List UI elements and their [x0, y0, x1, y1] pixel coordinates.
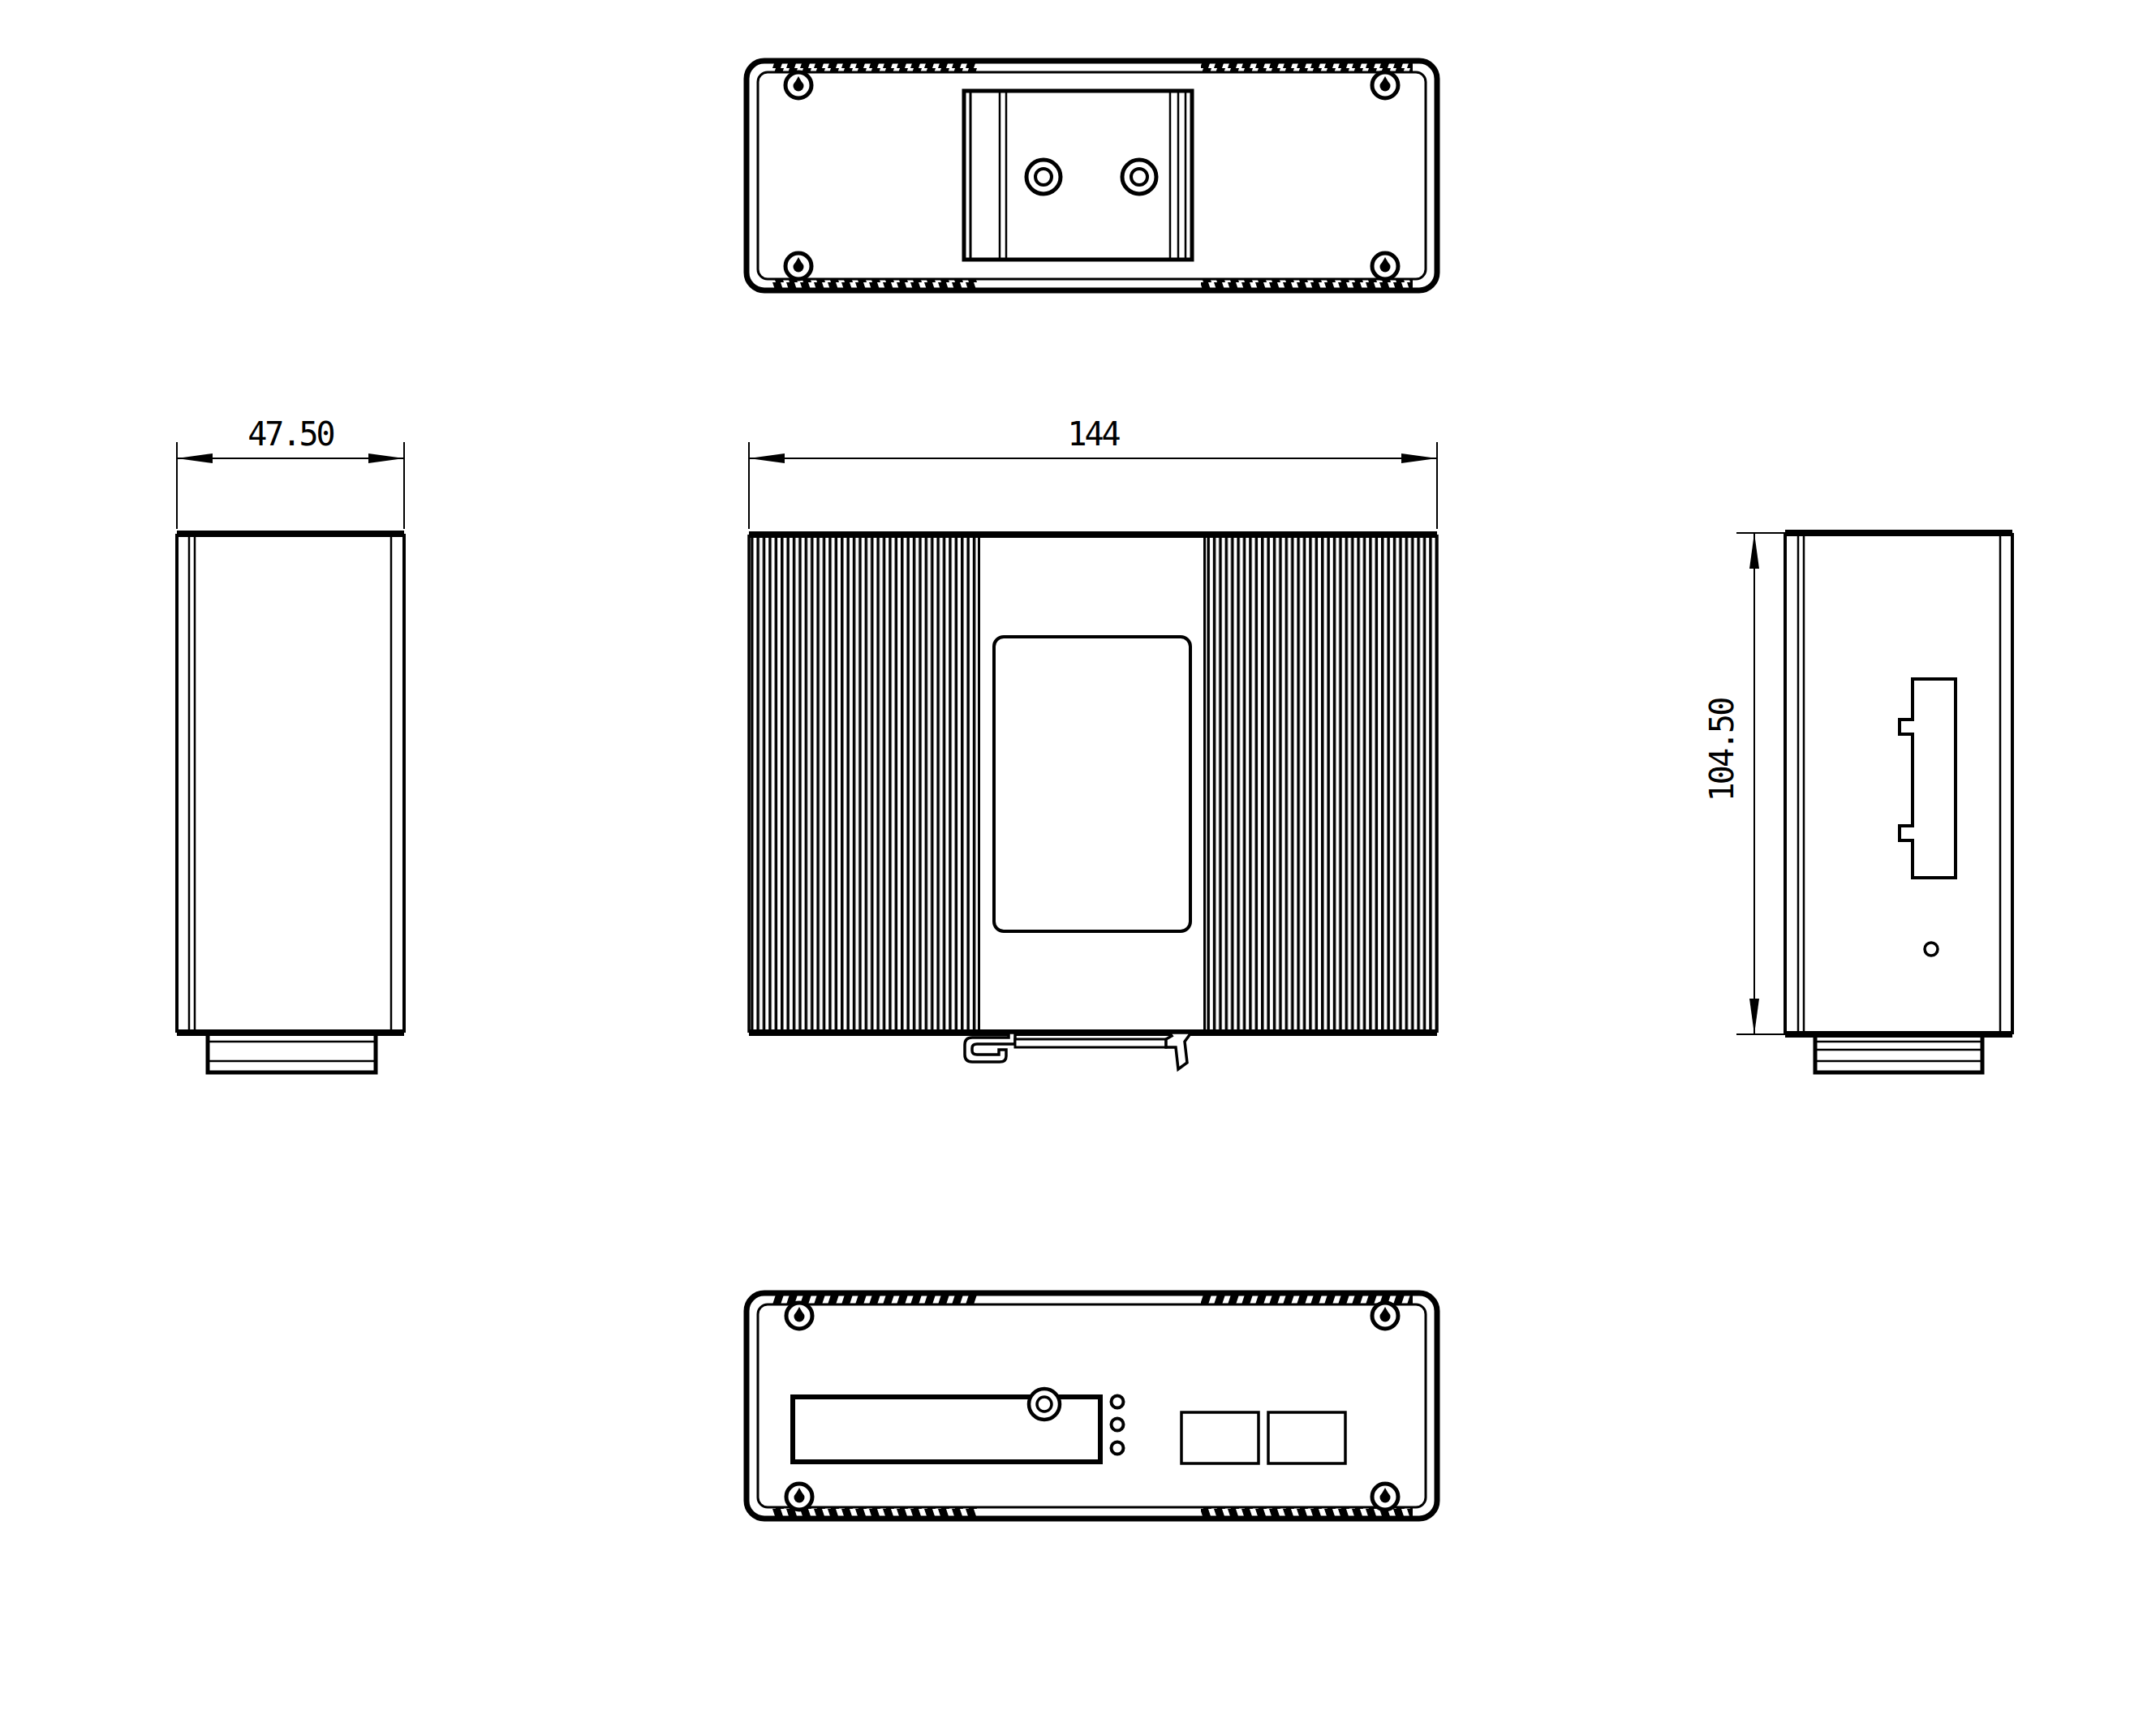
- arrowhead-top: [1749, 533, 1759, 569]
- heatsink-fins-right: [1203, 538, 1437, 1030]
- foot-outline: [1815, 1034, 1982, 1072]
- arrowhead-left: [177, 453, 213, 463]
- top-view: [747, 61, 1437, 290]
- led-hole: [1112, 1419, 1124, 1431]
- mounting-foot: [1815, 1034, 1982, 1072]
- drawing-canvas: 47.50 144: [0, 0, 2130, 1736]
- arrowhead-right: [368, 453, 404, 463]
- port-cutout: [1268, 1412, 1345, 1463]
- foot-outline: [208, 1033, 376, 1072]
- corner-screw: [786, 1303, 812, 1329]
- arrowhead-bottom: [1749, 999, 1759, 1034]
- clip-bar: [1015, 1039, 1166, 1047]
- terminal-screw: [1029, 1389, 1060, 1420]
- plate-screw: [1122, 160, 1156, 194]
- arrowhead-right: [1401, 453, 1437, 463]
- product-label-area: [994, 637, 1190, 931]
- corner-screw: [1372, 1484, 1398, 1510]
- corner-screw: [786, 1484, 812, 1510]
- dimension-depth: 47.50: [177, 415, 404, 529]
- pilot-hole: [1925, 943, 1938, 956]
- dimension-height-text: 104.50: [1703, 698, 1741, 801]
- clip-hook: [965, 1033, 1015, 1062]
- mounting-foot: [208, 1033, 376, 1072]
- corner-screw: [785, 253, 811, 279]
- dimension-depth-text: 47.50: [247, 415, 333, 453]
- corner-screw: [1372, 72, 1398, 98]
- din-plate-profile: [1900, 679, 1956, 878]
- led-hole: [1112, 1396, 1124, 1408]
- corner-screw: [785, 72, 811, 98]
- arrowhead-left: [749, 453, 785, 463]
- heatsink-fins-left: [749, 538, 980, 1030]
- bottom-view: [747, 1293, 1437, 1519]
- front-view: 144: [749, 415, 1437, 1069]
- dimension-width: 144: [749, 415, 1437, 529]
- corner-screw: [1372, 253, 1398, 279]
- clip-latch: [1166, 1033, 1191, 1069]
- multiview-technical-drawing: 47.50 144: [0, 0, 2130, 1736]
- corner-screw: [1372, 1303, 1398, 1329]
- dimension-width-text: 144: [1067, 415, 1120, 453]
- plate-screw: [1026, 160, 1061, 194]
- dimension-height: 104.50: [1703, 533, 1788, 1034]
- led-hole: [1112, 1442, 1124, 1455]
- port-cutout: [1181, 1412, 1259, 1463]
- left-side-view: 47.50: [177, 415, 404, 1072]
- din-rail-clip: [965, 1033, 1191, 1069]
- right-side-view: 104.50: [1703, 533, 2012, 1072]
- din-mount-plate-top: [964, 91, 1192, 260]
